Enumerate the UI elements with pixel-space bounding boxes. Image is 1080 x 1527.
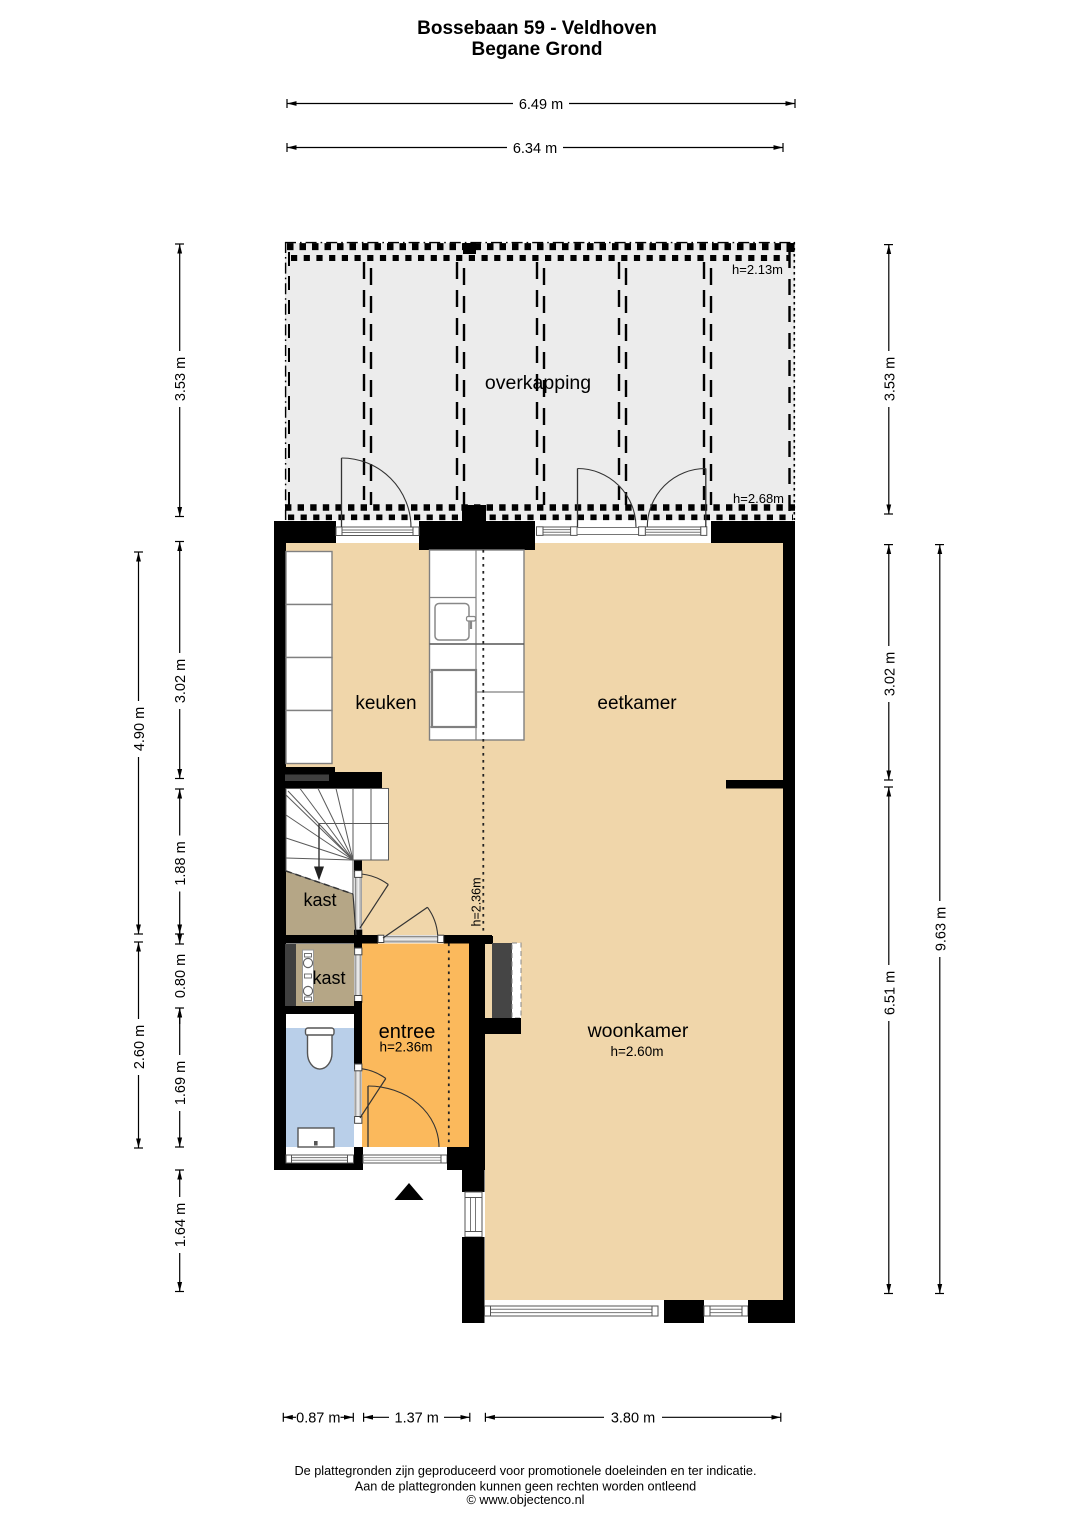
svg-text:6.49 m: 6.49 m xyxy=(519,97,563,113)
svg-text:kast: kast xyxy=(303,890,336,910)
svg-text:eetkamer: eetkamer xyxy=(597,693,677,714)
svg-text:1.37 m: 1.37 m xyxy=(395,1410,439,1426)
svg-text:keuken: keuken xyxy=(355,693,416,714)
svg-text:3.02 m: 3.02 m xyxy=(882,652,898,696)
svg-text:3.80 m: 3.80 m xyxy=(611,1410,655,1426)
svg-text:h=2.13m: h=2.13m xyxy=(732,262,783,277)
svg-text:h=2.60m: h=2.60m xyxy=(611,1044,664,1059)
svg-text:9.63 m: 9.63 m xyxy=(933,907,949,951)
svg-text:© www.objectenco.nl: © www.objectenco.nl xyxy=(467,1493,585,1507)
svg-text:1.64 m: 1.64 m xyxy=(173,1203,189,1247)
svg-text:3.53 m: 3.53 m xyxy=(882,357,898,401)
svg-text:6.34 m: 6.34 m xyxy=(513,141,557,157)
svg-text:2.60 m: 2.60 m xyxy=(132,1025,148,1069)
svg-text:4.90 m: 4.90 m xyxy=(132,707,148,751)
svg-text:6.51 m: 6.51 m xyxy=(882,971,898,1015)
svg-text:h=2.36m: h=2.36m xyxy=(470,878,484,927)
svg-text:1.69 m: 1.69 m xyxy=(173,1061,189,1105)
svg-text:0.80 m: 0.80 m xyxy=(173,954,189,998)
svg-text:kast: kast xyxy=(312,968,345,988)
svg-text:De plattegronden zijn geproduc: De plattegronden zijn geproduceerd voor … xyxy=(295,1464,757,1478)
svg-text:h=2.36m: h=2.36m xyxy=(380,1040,433,1055)
svg-text:3.02 m: 3.02 m xyxy=(173,659,189,703)
svg-text:0.87 m: 0.87 m xyxy=(296,1410,340,1426)
svg-text:Bossebaan 59 - Veldhoven: Bossebaan 59 - Veldhoven xyxy=(417,18,657,39)
svg-text:Begane Grond: Begane Grond xyxy=(472,39,603,60)
svg-text:3.53 m: 3.53 m xyxy=(173,357,189,401)
svg-text:woonkamer: woonkamer xyxy=(587,1020,689,1042)
svg-text:h=2.68m: h=2.68m xyxy=(733,491,784,506)
svg-text:overkapping: overkapping xyxy=(485,372,591,394)
svg-text:Aan de plattegronden kunnen ge: Aan de plattegronden kunnen geen rechten… xyxy=(355,1480,696,1494)
svg-text:1.88 m: 1.88 m xyxy=(173,841,189,885)
